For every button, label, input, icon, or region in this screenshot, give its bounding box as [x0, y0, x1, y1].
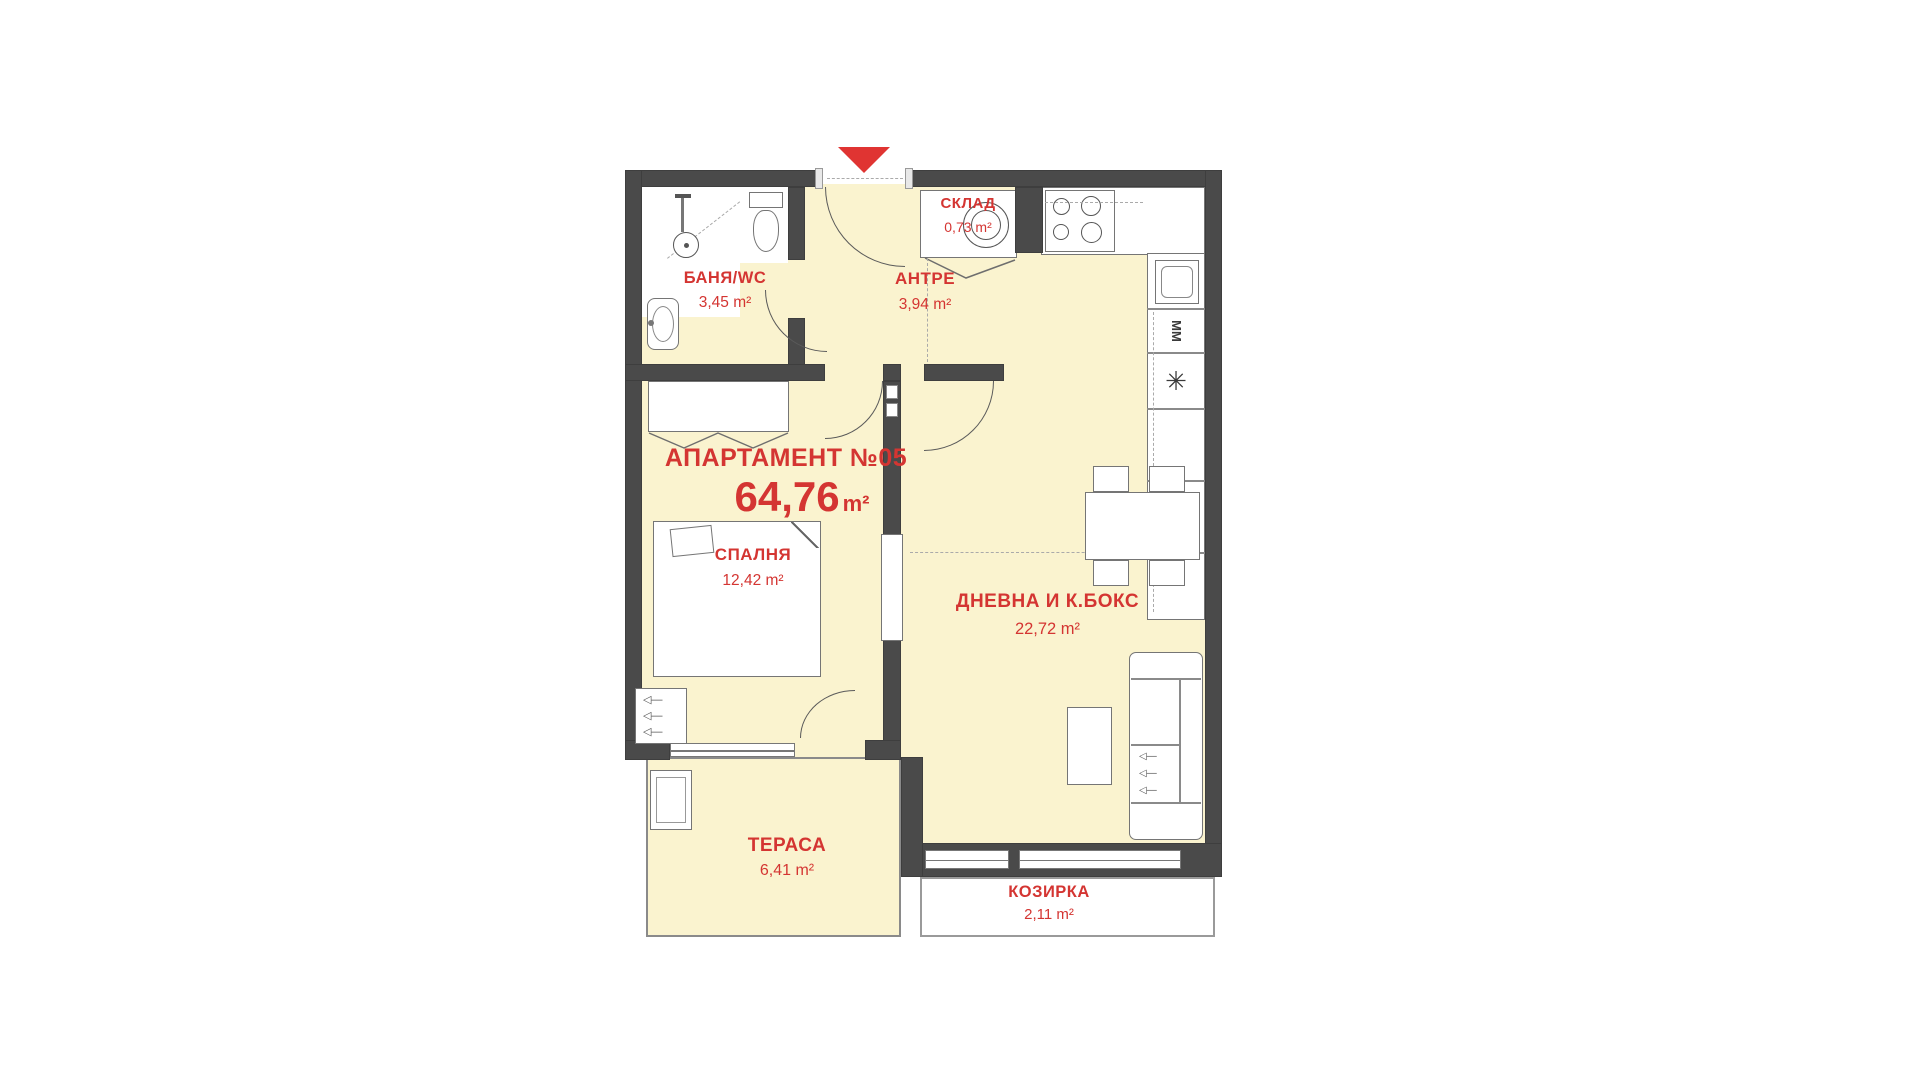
divider-door-panel [881, 534, 903, 641]
living-window-2 [1019, 850, 1181, 869]
room-label-storage: СКЛАД [922, 196, 1014, 212]
room-label-bathroom: БАНЯ/WC [665, 270, 785, 287]
chair-top-left [1093, 466, 1129, 492]
sink-tap [648, 320, 654, 326]
entrance-threshold [827, 178, 903, 179]
room-area-living: 22,72 m² [980, 621, 1115, 638]
kitchen-sink-basin [1161, 266, 1193, 298]
appliance-symbol: ✳ [1147, 356, 1205, 406]
shaft-box-1 [886, 385, 898, 399]
terrace-planter-inner [656, 777, 686, 823]
shower-drain-dot [684, 243, 689, 248]
total-area-value: 64,76 [735, 476, 840, 518]
sofa-backrest-line [1179, 678, 1181, 802]
radiator-arrows-icon: ◁—◁—◁— [643, 692, 683, 740]
apartment-title: АПАРТАМЕНТ №05 [640, 445, 932, 471]
sofa-armrest-top-line [1131, 678, 1201, 680]
wall-hall-corner [883, 364, 901, 381]
door-jamb-right [905, 168, 913, 189]
wall-bedroom-bottom-right [865, 740, 901, 760]
wall-top-right [905, 170, 1222, 187]
burner-1 [1053, 198, 1070, 215]
room-label-terrace: ТЕРАСА [727, 836, 847, 856]
room-label-hall: АНТРЕ [865, 270, 985, 288]
living-window-1 [925, 850, 1009, 869]
toilet-tank [749, 192, 783, 208]
sink-basin [652, 306, 674, 342]
washing-machine-label: ММ [1157, 302, 1195, 360]
room-area-bedroom: 12,42 m² [693, 573, 813, 589]
sofa-foldout-arrows-icon: ◁—◁—◁— [1139, 748, 1179, 800]
bedroom-terrace-window [670, 743, 795, 757]
wall-bath-right-upper [788, 187, 805, 260]
room-label-living: ДНЕВНА И К.БОКС [955, 592, 1140, 612]
room-area-canopy: 2,11 m² [989, 907, 1109, 923]
total-area-unit: m² [843, 493, 870, 518]
floor-plan: ММ ✳ [625, 140, 1225, 950]
wall-bath-bottom [625, 364, 825, 381]
room-area-terrace: 6,41 m² [727, 863, 847, 880]
wall-kitchen-pillar [1015, 187, 1043, 253]
apartment-total-area: 64,76 m² [677, 470, 927, 518]
wall-hall-stub [924, 364, 1004, 381]
coffee-table [1067, 707, 1112, 785]
wall-right [1205, 170, 1222, 877]
shower-hose [681, 198, 684, 232]
sofa-cushion-line [1131, 744, 1179, 746]
floor-plan-page: ММ ✳ [0, 0, 1920, 1080]
entrance-arrow-icon [838, 147, 890, 173]
wall-terrace-right [901, 757, 923, 877]
sofa [1129, 652, 1203, 840]
sofa-armrest-bottom-line [1131, 802, 1201, 804]
toilet-icon [753, 210, 779, 252]
burner-2 [1081, 196, 1101, 216]
bed-corner-fold [791, 522, 819, 548]
dining-table [1085, 492, 1200, 560]
counter-divider-3 [1147, 408, 1205, 410]
wardrobe [648, 381, 789, 432]
room-label-canopy: КОЗИРКА [989, 884, 1109, 901]
burner-3 [1053, 224, 1069, 240]
room-area-hall: 3,94 m² [865, 297, 985, 313]
chair-bottom-left [1093, 560, 1129, 586]
burner-4 [1081, 222, 1102, 243]
room-area-storage: 0,73 m² [922, 220, 1014, 235]
room-label-bedroom: СПАЛНЯ [693, 546, 813, 564]
chair-bottom-right [1149, 560, 1185, 586]
counter-dash-h [1045, 202, 1143, 203]
room-area-bathroom: 3,45 m² [665, 295, 785, 311]
wall-top-left [625, 170, 823, 187]
chair-top-right [1149, 466, 1185, 492]
door-jamb-left [815, 168, 823, 189]
shaft-box-2 [886, 403, 898, 417]
